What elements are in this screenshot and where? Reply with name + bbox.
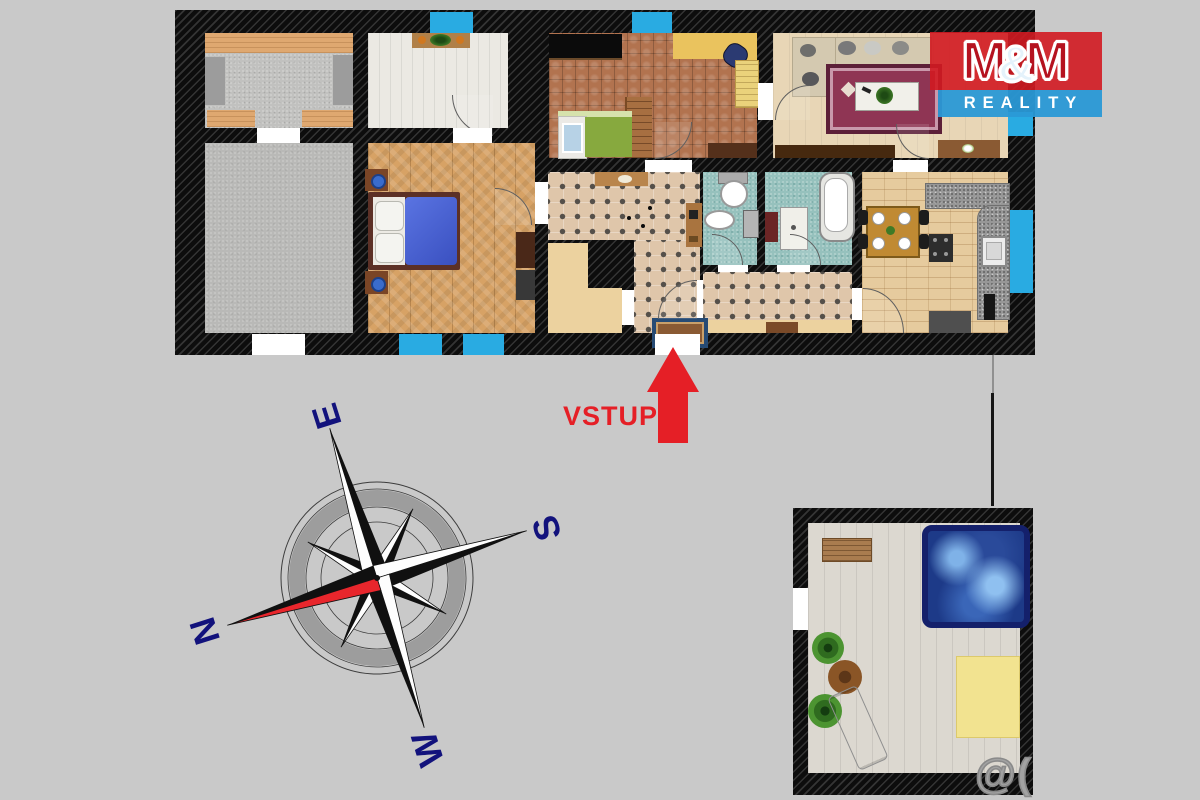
flower-icon: [962, 144, 974, 153]
single-bed: [735, 60, 759, 108]
door-opening: [257, 128, 300, 143]
room-pantry-b: [548, 288, 622, 333]
compass-rose: [207, 408, 547, 748]
lamp-icon: [371, 277, 386, 292]
stove-knob: [944, 252, 948, 256]
hall-dot: [630, 240, 634, 244]
corridor: [703, 272, 852, 320]
door-opening: [697, 280, 703, 318]
floorplan-screenshot: VSTUP E S N W: [0, 0, 1200, 800]
sideboard: [775, 145, 895, 158]
plate-icon: [898, 212, 911, 225]
logo-reality-bar: REALITY: [938, 90, 1102, 117]
room-garage: [205, 143, 353, 333]
logo-reality-text: REALITY: [957, 94, 1084, 113]
entrance-arrow-shaft: [658, 391, 688, 443]
sofa-pillow: [802, 72, 819, 86]
stove-knob: [933, 238, 937, 242]
chair: [919, 234, 929, 249]
plant-pot-icon: [456, 36, 464, 44]
window: [430, 12, 473, 33]
hall-dot: [648, 206, 652, 210]
workbench-bl: [207, 110, 255, 127]
pillow: [375, 233, 404, 263]
window: [463, 334, 504, 355]
hall-dot: [641, 224, 645, 228]
chair: [858, 210, 868, 225]
kitchen-cabinet: [929, 311, 971, 333]
wardrobe: [516, 232, 535, 268]
window: [632, 12, 672, 33]
pillow: [375, 201, 404, 231]
window: [1010, 210, 1033, 293]
door-opening: [852, 288, 862, 320]
yellow-mat: [956, 656, 1020, 738]
door-opening: [893, 160, 928, 172]
workbench-br: [302, 110, 353, 127]
door-opening: [252, 334, 305, 355]
potted-plant: [812, 632, 844, 664]
sofa-pillow: [864, 41, 881, 55]
bed-duvet: [405, 197, 457, 265]
watermark: @( Bazos.cz: [975, 750, 1200, 800]
plate-icon: [872, 212, 885, 225]
hall-bowl: [618, 175, 632, 183]
kitchen-sink-basin: [986, 242, 1002, 260]
hall-dot: [627, 216, 631, 220]
sofa-pillow: [892, 41, 909, 55]
toilet-bowl: [720, 180, 748, 208]
bath-cabinet: [765, 212, 778, 242]
corridor-item: [766, 322, 798, 333]
door-opening: [535, 182, 548, 224]
door-opening: [622, 290, 634, 325]
chair: [858, 234, 868, 249]
entrance-label: VSTUP: [563, 401, 658, 432]
stove-knob: [944, 238, 948, 242]
logo-ampersand: &: [998, 39, 1034, 89]
lamp-icon: [371, 174, 386, 189]
sink-oval: [704, 210, 735, 230]
desk: [516, 270, 535, 300]
faucet-icon: [791, 225, 796, 230]
sofa-pillow: [800, 44, 816, 57]
door-opening: [777, 265, 810, 272]
window: [399, 334, 442, 355]
bathtub-inner: [824, 178, 848, 232]
plate-icon: [872, 237, 885, 250]
connector-line-thin: [992, 355, 994, 394]
terrace-opening: [793, 588, 808, 630]
plant-icon: [430, 34, 451, 46]
table-plant-icon: [876, 87, 893, 104]
door-opening: [758, 83, 773, 120]
kids-bed-green: [585, 117, 632, 157]
hall-desk-item: [689, 236, 698, 242]
machine-left: [205, 57, 225, 105]
workbench-top: [205, 33, 353, 53]
terrace-bench: [822, 538, 872, 562]
crib-blue: [562, 123, 583, 153]
hall-desk-item: [689, 210, 698, 219]
door-opening: [453, 128, 492, 143]
hot-tub: [922, 525, 1030, 628]
door-opening: [645, 160, 692, 172]
fridge: [984, 294, 995, 320]
wardrobe-black: [549, 34, 622, 60]
chair: [919, 210, 929, 225]
connector-line-thick: [991, 393, 994, 506]
machine-right: [333, 55, 353, 105]
sofa-pillow: [838, 41, 856, 55]
vanity: [743, 210, 759, 238]
logo-mm-reality: M&M: [930, 32, 1102, 90]
stove-knob: [933, 252, 937, 256]
dresser: [708, 143, 757, 158]
entrance-arrow-head: [647, 347, 699, 392]
plant-pot-icon: [418, 36, 426, 44]
centerpiece-icon: [886, 226, 895, 235]
door-opening: [718, 265, 748, 272]
plate-icon: [898, 237, 911, 250]
